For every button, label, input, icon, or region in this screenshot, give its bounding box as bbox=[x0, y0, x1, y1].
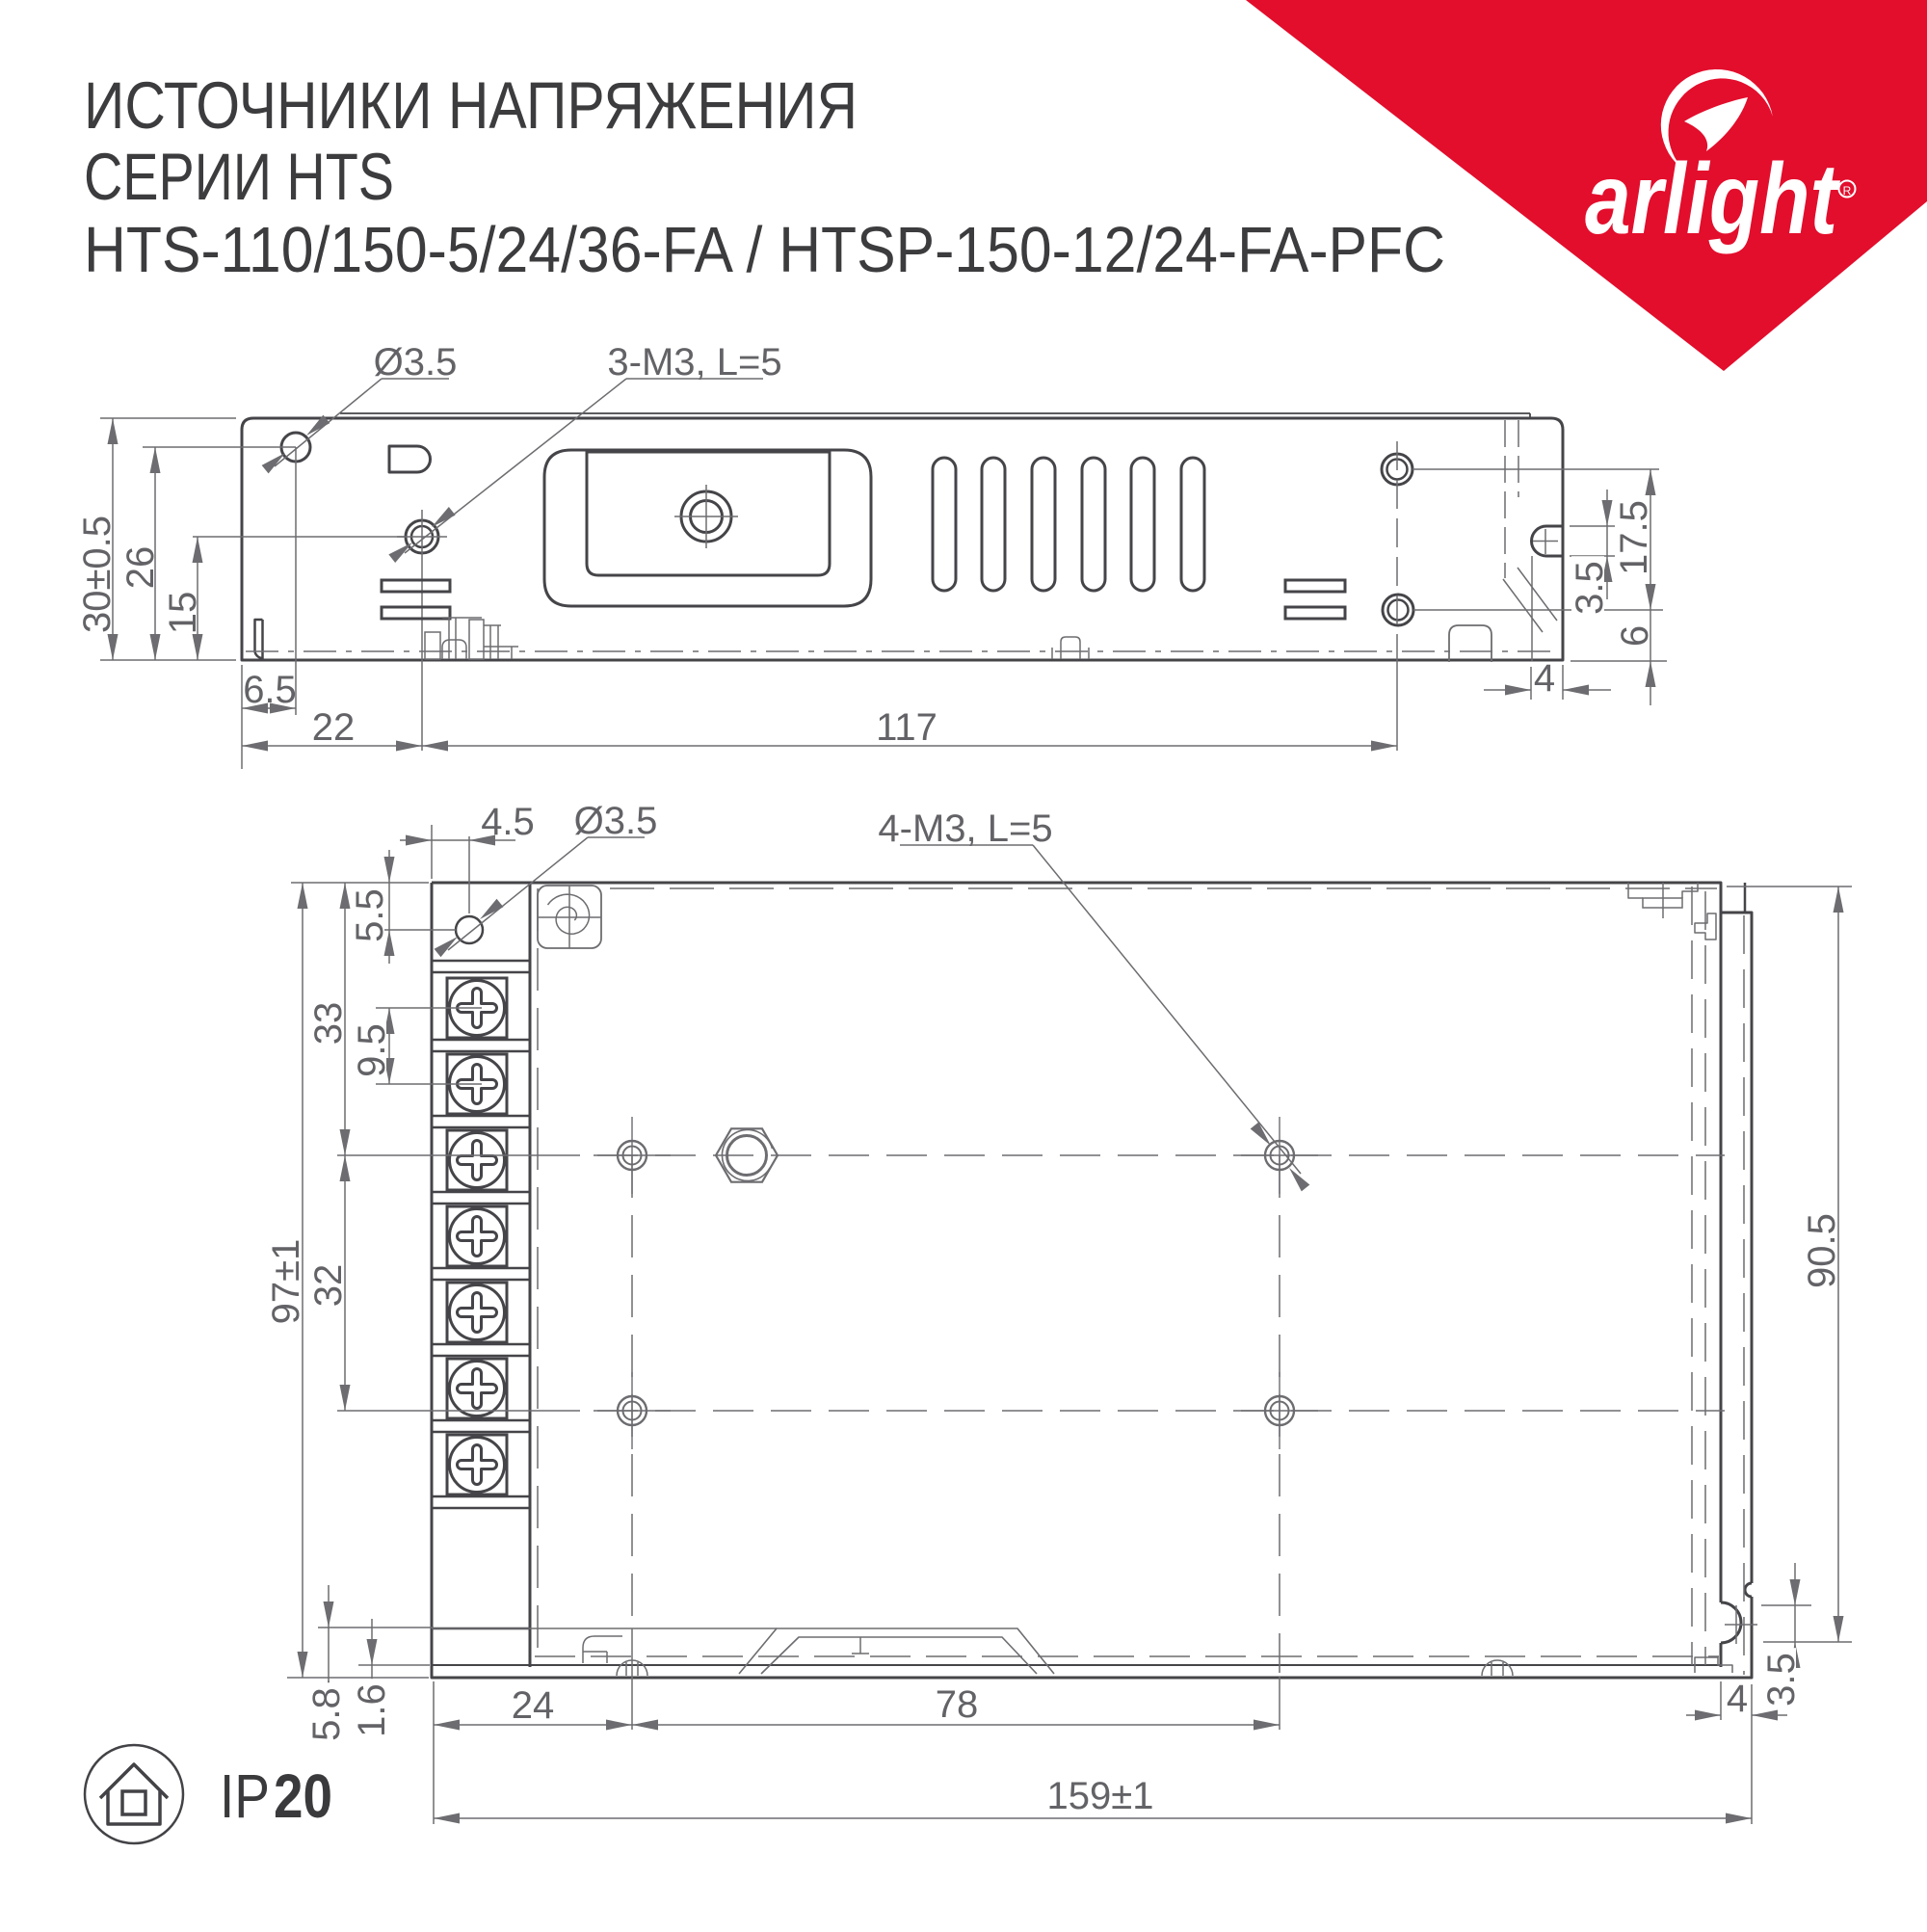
svg-text:4-M3, L=5: 4-M3, L=5 bbox=[878, 807, 1052, 850]
svg-text:32: 32 bbox=[307, 1264, 350, 1308]
svg-text:Ø3.5: Ø3.5 bbox=[374, 341, 458, 384]
svg-text:24: 24 bbox=[512, 1684, 555, 1727]
svg-text:5.8: 5.8 bbox=[305, 1687, 348, 1741]
svg-text:IP: IP bbox=[220, 1761, 270, 1831]
svg-text:26: 26 bbox=[119, 546, 162, 590]
svg-text:78: 78 bbox=[936, 1683, 979, 1726]
svg-text:159±1: 159±1 bbox=[1047, 1775, 1154, 1817]
svg-text:СЕРИИ HTS: СЕРИИ HTS bbox=[84, 140, 394, 214]
svg-text:20: 20 bbox=[274, 1761, 332, 1831]
svg-text:4.5: 4.5 bbox=[481, 801, 535, 843]
svg-text:arlight: arlight bbox=[1585, 144, 1841, 255]
svg-text:3.5: 3.5 bbox=[1569, 561, 1611, 615]
svg-text:4: 4 bbox=[1534, 657, 1555, 700]
svg-text:3.5: 3.5 bbox=[1760, 1653, 1803, 1707]
svg-text:90.5: 90.5 bbox=[1801, 1213, 1843, 1288]
svg-text:15: 15 bbox=[162, 592, 204, 635]
svg-text:6: 6 bbox=[1614, 625, 1656, 647]
svg-text:ИСТОЧНИКИ НАПРЯЖЕНИЯ: ИСТОЧНИКИ НАПРЯЖЕНИЯ bbox=[84, 68, 858, 143]
svg-text:22: 22 bbox=[312, 706, 356, 749]
svg-text:HTS-110/150-5/24/36-FA / HTSP-: HTS-110/150-5/24/36-FA / HTSP-150-12/24-… bbox=[84, 214, 1445, 286]
svg-text:97±1: 97±1 bbox=[265, 1239, 307, 1325]
svg-text:5.5: 5.5 bbox=[349, 888, 391, 942]
svg-text:R: R bbox=[1843, 184, 1852, 198]
svg-text:17.5: 17.5 bbox=[1613, 500, 1655, 575]
svg-text:1.6: 1.6 bbox=[351, 1683, 393, 1737]
svg-text:Ø3.5: Ø3.5 bbox=[574, 800, 658, 842]
svg-text:6.5: 6.5 bbox=[243, 669, 297, 711]
svg-text:33: 33 bbox=[307, 1002, 350, 1045]
svg-text:4: 4 bbox=[1727, 1678, 1748, 1720]
svg-text:9.5: 9.5 bbox=[351, 1023, 393, 1077]
svg-text:30±0.5: 30±0.5 bbox=[76, 516, 119, 633]
svg-text:3-M3, L=5: 3-M3, L=5 bbox=[607, 341, 781, 384]
svg-text:117: 117 bbox=[876, 706, 937, 749]
